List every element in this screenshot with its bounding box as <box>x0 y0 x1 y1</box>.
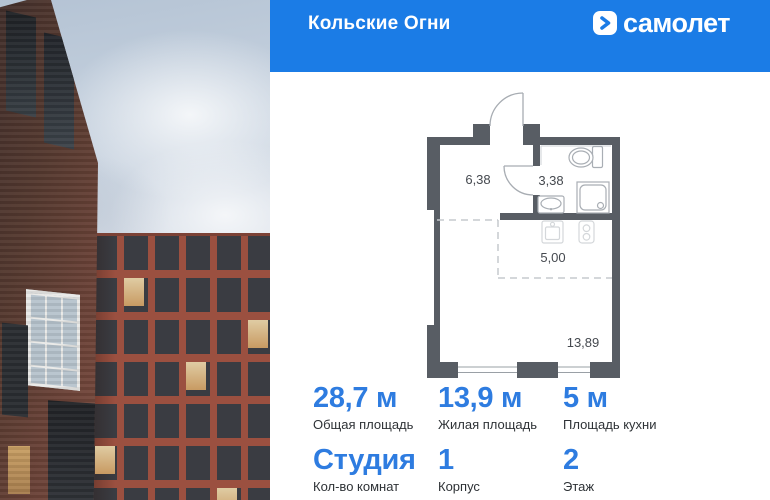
lit-window <box>248 320 268 348</box>
stat-total-area: 28,7 м Общая площадь <box>313 383 438 432</box>
shower-icon <box>577 182 609 213</box>
dark-window <box>44 33 74 150</box>
stat-value: 1 <box>438 445 563 475</box>
room-area-label-living-room: 13,89 <box>567 335 600 350</box>
stat-value: 28,7 м <box>313 383 438 413</box>
stat-value: 13,9 м <box>438 383 563 413</box>
dark-window <box>6 11 36 118</box>
stat-rooms: Студия Кол-во комнат <box>313 445 438 494</box>
stat-kitchen-area: 5 м Площадь кухни <box>563 383 703 432</box>
walls <box>427 124 620 378</box>
brand-name: самолет <box>623 10 730 36</box>
window-openings <box>458 362 590 378</box>
room-area-label-hallway: 6,38 <box>465 172 490 187</box>
dark-window <box>2 323 28 418</box>
bathroom-sink-icon <box>538 196 564 213</box>
listing-card: Кольские Огни самолет <box>0 0 770 500</box>
entry-door <box>490 93 523 126</box>
room-area-label-kitchen: 5,00 <box>540 250 565 265</box>
stat-label: Корпус <box>438 479 563 494</box>
stats-row-areas: 28,7 м Общая площадь 13,9 м Жилая площад… <box>313 383 703 432</box>
bathroom-inner-line <box>541 146 611 212</box>
stove-icon <box>579 221 594 243</box>
window-glazing <box>458 367 590 373</box>
lit-window <box>186 362 206 390</box>
header-bar: Кольские Огни самолет <box>270 0 770 72</box>
stat-value: Студия <box>313 445 438 475</box>
bathroom-door <box>504 166 533 195</box>
room-area-label-bathroom: 3,38 <box>538 173 563 188</box>
glazed-window <box>26 289 80 391</box>
stat-label: Общая площадь <box>313 417 438 432</box>
lit-window <box>217 488 237 500</box>
toilet-icon <box>569 147 603 168</box>
balcony <box>48 400 98 500</box>
stat-floor: 2 Этаж <box>563 445 703 494</box>
stat-value: 5 м <box>563 383 703 413</box>
stat-label: Площадь кухни <box>563 417 703 432</box>
stat-label: Жилая площадь <box>438 417 563 432</box>
stat-label: Кол-во комнат <box>313 479 438 494</box>
kitchen-zone-dashed-boundary <box>437 220 612 278</box>
samolet-logo-icon <box>593 11 617 35</box>
project-title: Кольские Огни <box>308 13 451 35</box>
lit-window <box>124 278 144 306</box>
building-photo <box>0 0 270 500</box>
lit-window <box>8 446 30 494</box>
stat-building: 1 Корпус <box>438 445 563 494</box>
lit-window <box>95 446 115 474</box>
stat-value: 2 <box>563 445 703 475</box>
kitchen-sink-icon <box>542 221 563 243</box>
stats-row-details: Студия Кол-во комнат 1 Корпус 2 Этаж <box>313 445 703 494</box>
background-building <box>86 233 270 500</box>
stat-living-area: 13,9 м Жилая площадь <box>438 383 563 432</box>
stat-label: Этаж <box>563 479 703 494</box>
samolet-logo[interactable]: самолет <box>593 10 730 36</box>
